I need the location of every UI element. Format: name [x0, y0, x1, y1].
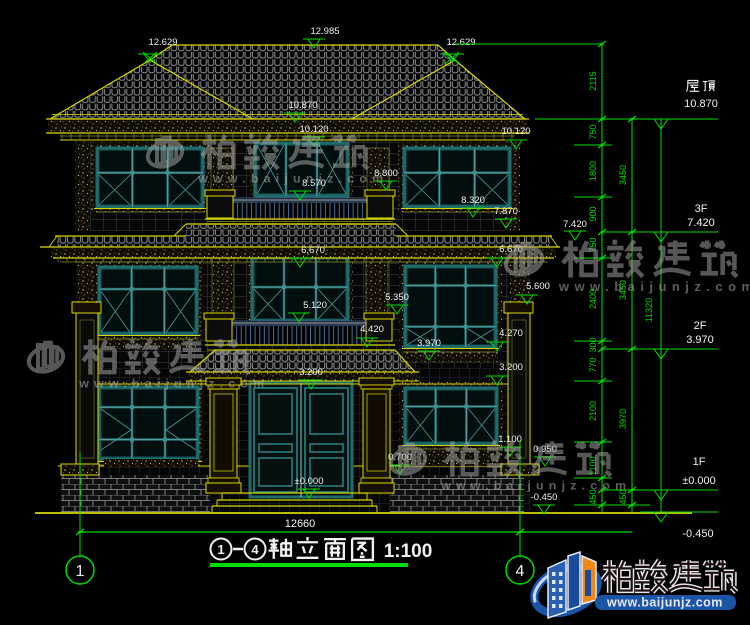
svg-text:3F: 3F — [695, 203, 708, 215]
svg-text:10.120: 10.120 — [501, 126, 530, 137]
svg-text:3450: 3450 — [618, 165, 628, 185]
svg-text:10.870: 10.870 — [288, 100, 317, 111]
svg-text:2F: 2F — [694, 320, 707, 332]
svg-text:5.350: 5.350 — [385, 292, 409, 303]
svg-text:3.970: 3.970 — [417, 338, 441, 349]
svg-text:4.270: 4.270 — [499, 328, 523, 339]
svg-text:2115: 2115 — [588, 71, 598, 90]
svg-text:5.120: 5.120 — [303, 300, 327, 311]
svg-text:300: 300 — [588, 337, 598, 352]
svg-text:4: 4 — [251, 542, 259, 557]
svg-text:7.420: 7.420 — [687, 217, 715, 229]
svg-text:3970: 3970 — [618, 409, 628, 429]
svg-text:4.420: 4.420 — [360, 324, 384, 335]
svg-text:900: 900 — [588, 206, 598, 221]
svg-text:www.baijunjz.com: www.baijunjz.com — [440, 478, 631, 492]
svg-text:3.970: 3.970 — [686, 334, 714, 346]
svg-text:11320: 11320 — [644, 298, 654, 322]
svg-text:-0.450: -0.450 — [531, 492, 558, 503]
svg-text:4: 4 — [516, 563, 525, 580]
svg-text:±0.000: ±0.000 — [295, 476, 324, 487]
svg-text:3.200: 3.200 — [299, 367, 323, 378]
svg-text:12.629: 12.629 — [148, 37, 177, 48]
svg-text:www.baijunjz.com: www.baijunjz.com — [558, 279, 750, 294]
svg-text:7.870: 7.870 — [494, 206, 518, 217]
svg-text:2100: 2100 — [588, 401, 598, 421]
svg-text:10.120: 10.120 — [299, 124, 328, 135]
svg-text:3.200: 3.200 — [499, 362, 523, 373]
svg-text:www.baijunjz.com: www.baijunjz.com — [78, 376, 269, 390]
svg-text:12.985: 12.985 — [310, 26, 339, 37]
svg-text:1: 1 — [76, 563, 85, 580]
svg-text:12660: 12660 — [285, 518, 316, 530]
svg-text:12.629: 12.629 — [446, 37, 475, 48]
svg-text:10.870: 10.870 — [684, 98, 718, 110]
svg-text:-0.450: -0.450 — [682, 528, 713, 540]
svg-text:8.320: 8.320 — [461, 195, 485, 206]
svg-text:www.baijunjz.com: www.baijunjz.com — [606, 596, 723, 610]
svg-text:1: 1 — [217, 542, 224, 557]
svg-text:750: 750 — [588, 124, 598, 139]
svg-text:1:100: 1:100 — [384, 541, 433, 562]
svg-text:7.420: 7.420 — [563, 219, 587, 230]
svg-text:www.baijunjz.com: www.baijunjz.com — [197, 171, 388, 185]
svg-text:1800: 1800 — [588, 161, 598, 181]
svg-text:770: 770 — [588, 357, 598, 372]
svg-text:±0.000: ±0.000 — [682, 475, 716, 487]
svg-text:6.670: 6.670 — [301, 245, 325, 256]
svg-text:1F: 1F — [693, 456, 706, 468]
svg-text:5.600: 5.600 — [526, 281, 550, 292]
